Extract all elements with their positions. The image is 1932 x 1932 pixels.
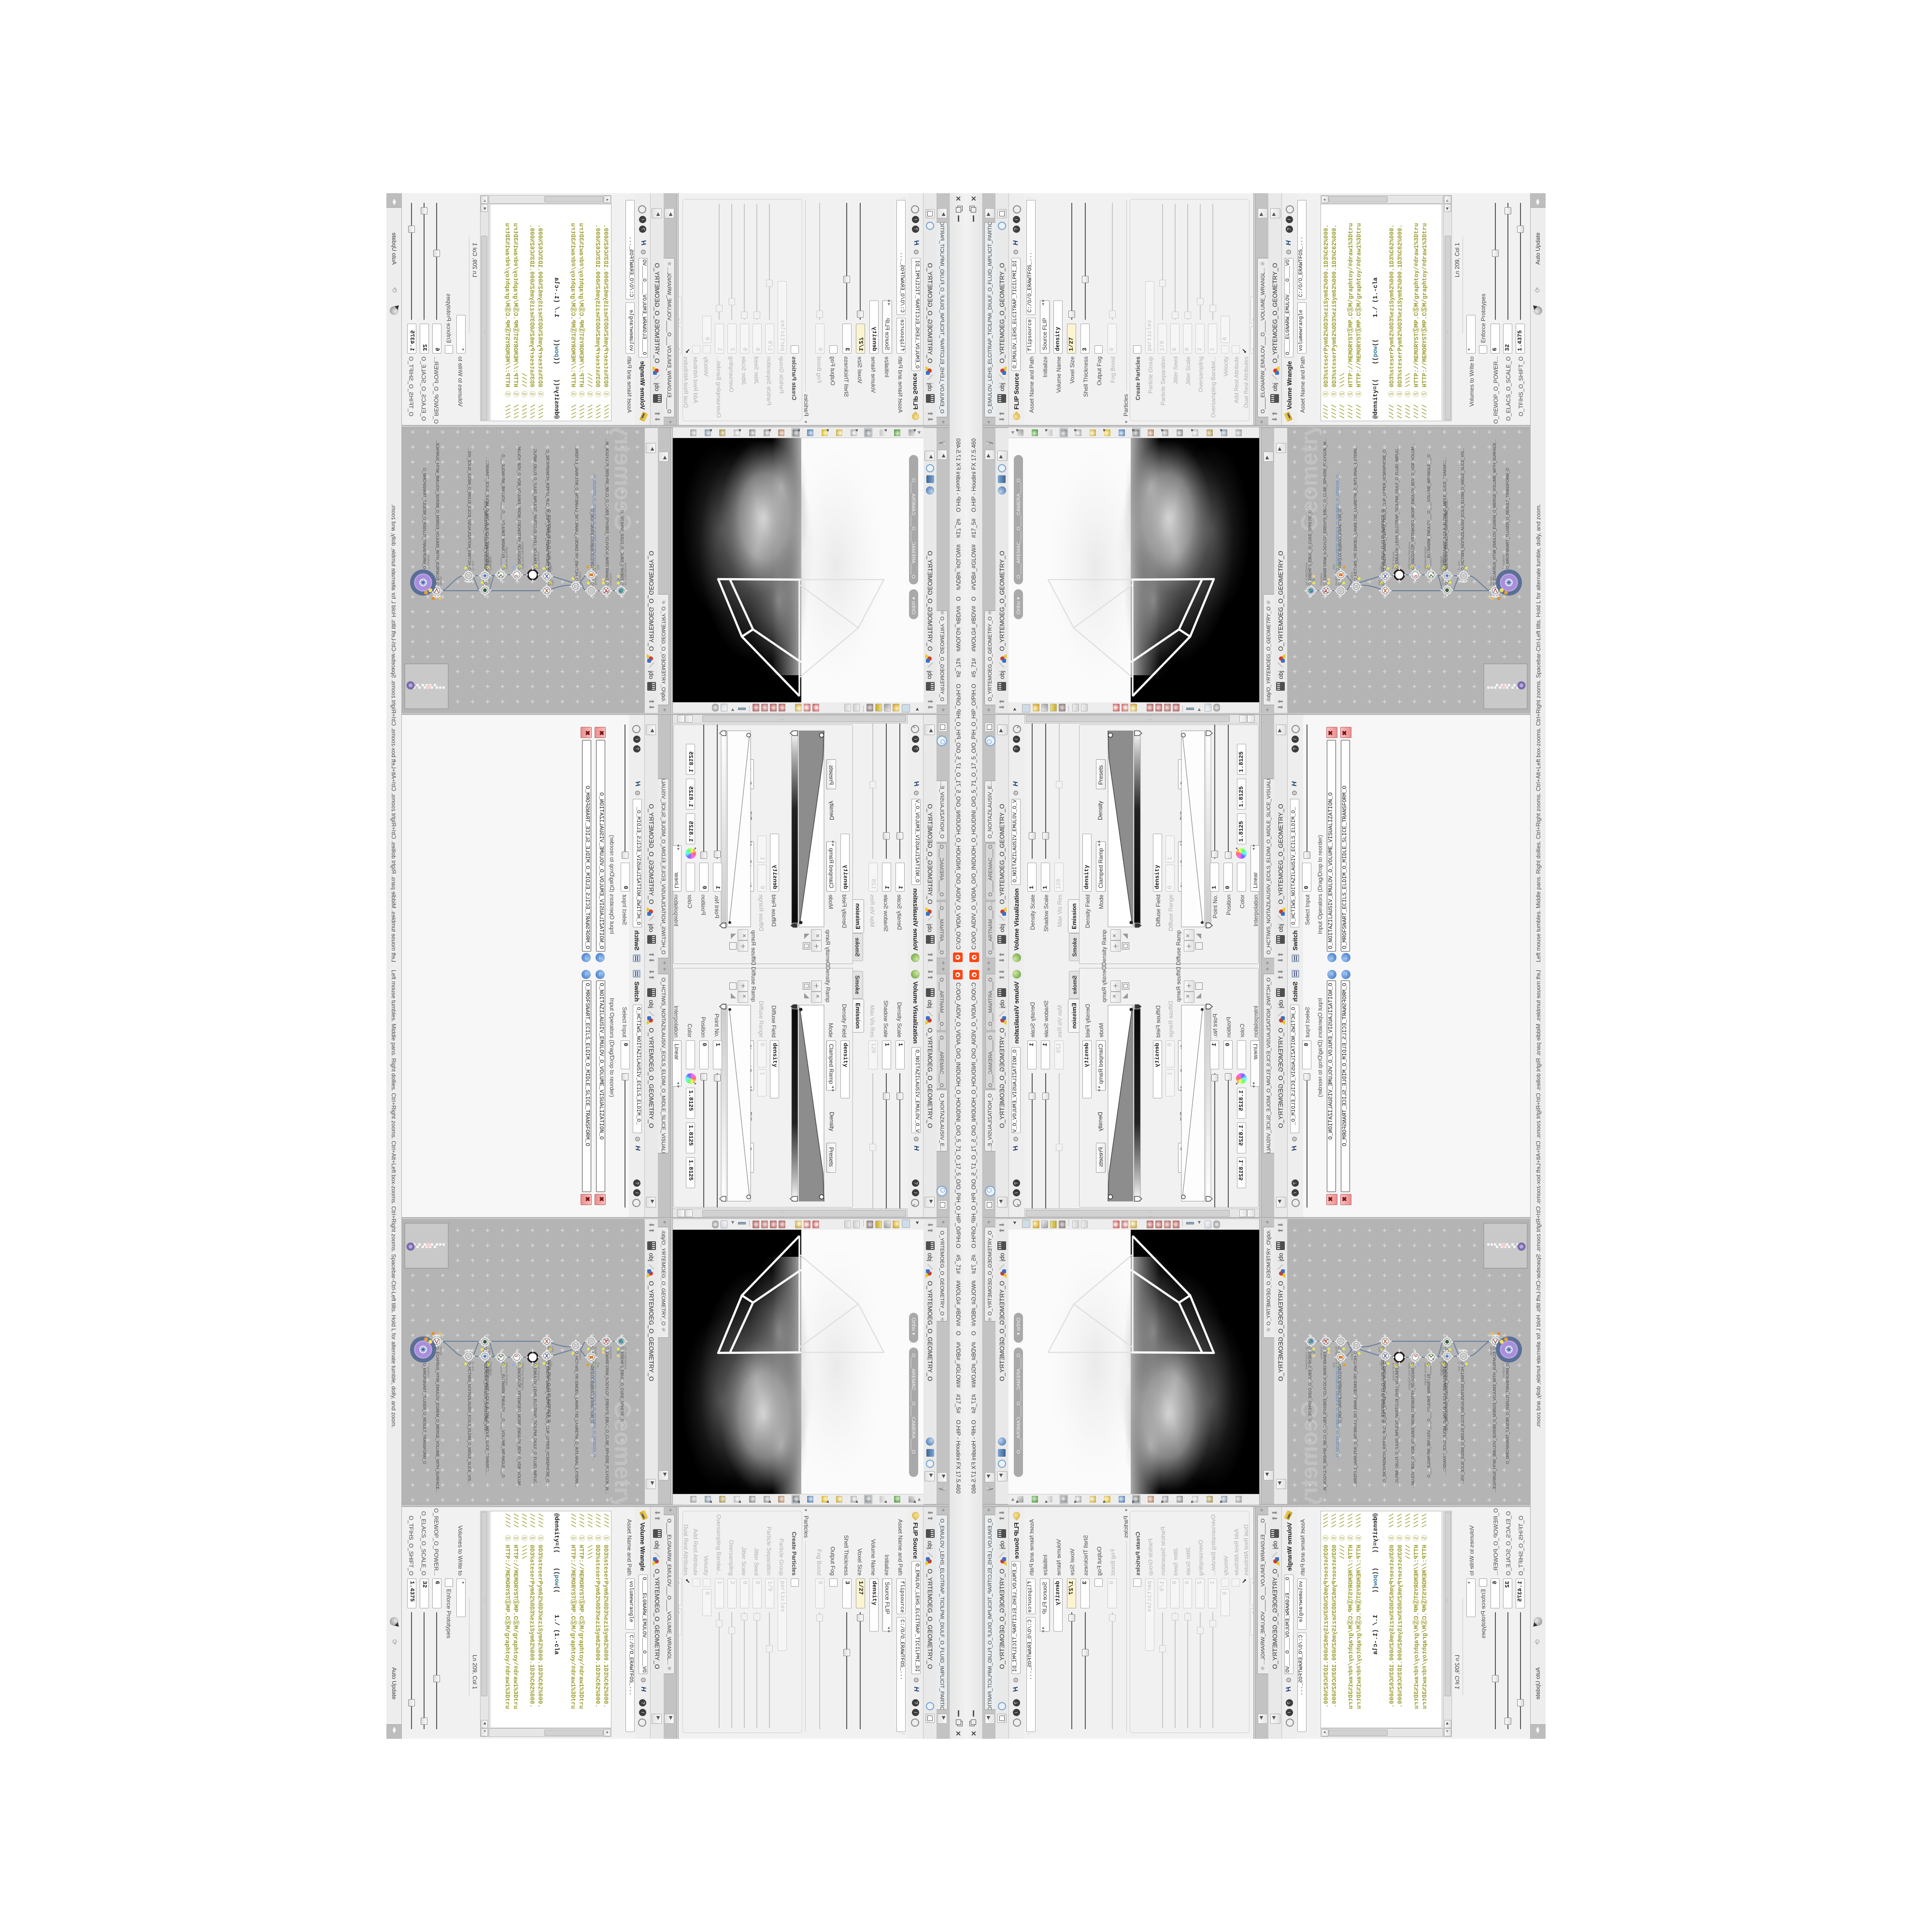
svg-text:Ortho ▾: Ortho ▾: [1016, 1318, 1022, 1335]
svg-text:Clip: Clip: [549, 1361, 553, 1367]
svg-text:Ortho ▾: Ortho ▾: [1016, 597, 1022, 614]
svg-text:O_EMARFERIW_NOGYLOP_EREHPS_EBU: O_EMARFERIW_NOGYLOP_EREHPS_EBUC_O_CUBE_S…: [605, 1347, 609, 1493]
svg-text:Switch: Switch: [471, 1362, 474, 1371]
svg-text:O_ECAFRUS_HTIW_EMULOV_EGREM_O_: O_ECAFRUS_HTIW_EMULOV_EGREM_O_MERGE_VOLU…: [1492, 440, 1497, 585]
svg-text:VDB from Polygons: VDB from Polygons: [521, 542, 524, 569]
svg-text:O____AREMAC____O____CAMERA____: O____AREMAC____O____CAMERA____O: [910, 478, 916, 579]
svg-text:O_EREHPS_EBUC_O_CUBE_SPHERE_O: O_EREHPS_EBUC_O_CUBE_SPHERE_O: [620, 510, 624, 585]
svg-text:O_MROFSNART_ECILS_ELDIM_O_MIDL: O_MROFSNART_ECILS_ELDIM_O_MIDLE_SLICE_TR…: [1443, 1362, 1447, 1475]
svg-text:S: S: [1413, 1355, 1418, 1357]
svg-text:O_MROFSNART_TLUSER_O_RESULT_TR: O_MROFSNART_TLUSER_O_RESULT_TRANSFORM_O: [1506, 1363, 1510, 1464]
svg-text:O_EREHPS_EBUC_O_CUBE_SPHERE_O: O_EREHPS_EBUC_O_CUBE_SPHERE_O: [1308, 1347, 1312, 1422]
svg-text:Switch: Switch: [578, 1351, 582, 1361]
svg-text:Switch: Switch: [578, 571, 582, 581]
svg-text:O_SNOGILOP_YRTEMOEG_MORF_EMULO: O_SNOGILOP_YRTEMOEG_MORF_EMULOV_BDV_O_VD…: [517, 443, 521, 569]
svg-text:O_MROFSNART_TLUSER_O_RESULT_TR: O_MROFSNART_TLUSER_O_RESULT_TRANSFORM_O: [1506, 468, 1510, 569]
svg-text:VDB from Polygons: VDB from Polygons: [521, 1363, 524, 1390]
svg-text:O_EREHPS_EBUC_O_CUBE_SPHERE_O: O_EREHPS_EBUC_O_CUBE_SPHERE_O: [620, 1347, 624, 1422]
svg-text:an_CubeSphere: an_CubeSphere: [624, 562, 627, 585]
svg-text:O_HCTIWS_YRTEMOEG_LANRETXE_LAN: O_HCTIWS_YRTEMOEG_LANRETXE_LANRETNI_O_IN…: [1353, 445, 1358, 581]
svg-text:Clip: Clip: [551, 580, 554, 585]
svg-text:Switch: Switch: [471, 561, 474, 570]
svg-text:Ortho ▾: Ortho ▾: [910, 1318, 916, 1335]
svg-text:FLIP Source: FLIP Source: [537, 1363, 540, 1380]
svg-text:JBO.NO1PETS.TRFOLS_O_5SUNEG_O_: JBO.NO1PETS.TRFOLS_O_5SUNEG_O_GENUS5_O..…: [1335, 472, 1340, 569]
svg-text:Merge: Merge: [439, 1347, 442, 1356]
svg-text:File: File: [596, 564, 599, 569]
svg-text:O____ELGNARW_EMULOV___O____VOL: O____ELGNARW_EMULOV___O____VOLUME_WRANGL…: [501, 455, 505, 569]
svg-text:O____ELGNARW_EMULOV___O____VOL: O____ELGNARW_EMULOV___O____VOLUME_WRANGL…: [1427, 455, 1431, 569]
svg-text:FLIP Source: FLIP Source: [537, 552, 540, 569]
svg-text:Transform: Transform: [426, 1363, 430, 1377]
svg-text:O_EREHPS_EBUC_O_CUBE_SPHERE_O: O_EREHPS_EBUC_O_CUBE_SPHERE_O: [1308, 510, 1312, 585]
svg-text:Merge: Merge: [439, 576, 442, 585]
svg-text:O_SNOGILOP_YRTEMOEG_MORF_EMULO: O_SNOGILOP_YRTEMOEG_MORF_EMULOV_BDV_O_VD…: [1411, 443, 1415, 569]
svg-text:O_ECAFRUS_HTIW_EMULOV_EGREM_O_: O_ECAFRUS_HTIW_EMULOV_EGREM_O_MERGE_VOLU…: [435, 440, 440, 585]
svg-text:File: File: [596, 1363, 599, 1368]
svg-text:O_SNOGILOP_YRTEMOEG_MORF_EMULO: O_SNOGILOP_YRTEMOEG_MORF_EMULOV_BDV_O_VD…: [517, 1363, 521, 1489]
svg-text:O_EREHPSIMEH_REPPU_PILC_O_CLIP: O_EREHPSIMEH_REPPU_PILC_O_CLIP_UPPER_HEM…: [545, 1361, 550, 1482]
svg-text:O_HCTIWS_NOITAZILAUSIV_ECILS_E: O_HCTIWS_NOITAZILAUSIV_ECILS_ELDIM_O_MID…: [467, 1362, 471, 1484]
svg-text:O_EREHPSIMEH_REPPU_PILC_O_CLIP: O_EREHPSIMEH_REPPU_PILC_O_CLIP_UPPER_HEM…: [1382, 1361, 1387, 1482]
svg-text:O_SNOGILOP_YRTEMOEG_MORF_EMULO: O_SNOGILOP_YRTEMOEG_MORF_EMULOV_BDV_O_VD…: [1411, 1363, 1415, 1489]
svg-text:O_EMARFERIW_NOGYLOP_EREHPS_EBU: O_EMARFERIW_NOGYLOP_EREHPS_EBUC_O_CUBE_S…: [1323, 439, 1327, 585]
svg-text:O_HCTIWS_YRTEMOEG_LANRETXE_LAN: O_HCTIWS_YRTEMOEG_LANRETXE_LANRETNI_O_IN…: [574, 1351, 579, 1487]
svg-text:Volume Wrangle: Volume Wrangle: [505, 546, 508, 569]
svg-text:O____ELGNARW_EMULOV___O____VOL: O____ELGNARW_EMULOV___O____VOLUME_WRANGL…: [1427, 1363, 1431, 1477]
svg-text:JBO.NO1PETS.TRFOLS_O_5SUNEG_O_: JBO.NO1PETS.TRFOLS_O_5SUNEG_O_GENUS5_O..…: [592, 1363, 597, 1460]
svg-text:PolyWire: PolyWire: [609, 1347, 612, 1359]
svg-text:O_EREHPSIMEH_REPPU_PILC_O_CLIP: O_EREHPSIMEH_REPPU_PILC_O_CLIP_UPPER_HEM…: [545, 450, 550, 571]
svg-text:O_ECAFRUS_HTIW_EMULOV_EGREM_O_: O_ECAFRUS_HTIW_EMULOV_EGREM_O_MERGE_VOLU…: [435, 1347, 440, 1492]
svg-text:O_HCTIWS_YRTEMOEG_LANRETXE_LAN: O_HCTIWS_YRTEMOEG_LANRETXE_LANRETNI_O_IN…: [1353, 1351, 1358, 1487]
svg-text:O_MROFSNART_ECILS_ELDIM_O_MIDL: O_MROFSNART_ECILS_ELDIM_O_MIDLE_SLICE_TR…: [1443, 457, 1447, 570]
svg-text:Transform: Transform: [489, 556, 492, 570]
svg-text:O_EMARFERIW_NOGYLOP_EREHPS_EBU: O_EMARFERIW_NOGYLOP_EREHPS_EBUC_O_CUBE_S…: [1323, 1347, 1327, 1493]
svg-text:O_EMULOV_LEHS_ELCITRAP_TICILPM: O_EMULOV_LEHS_ELCITRAP_TICILPMI_DIULF_O_…: [1395, 1363, 1399, 1486]
svg-text:an_CubeSphere: an_CubeSphere: [624, 1347, 627, 1370]
svg-text:O_MROFSNART_TLUSER_O_RESULT_TR: O_MROFSNART_TLUSER_O_RESULT_TRANSFORM_O: [422, 468, 426, 569]
svg-text:Volume Wrangle: Volume Wrangle: [505, 1363, 508, 1386]
svg-text:O_MROFSNART_ECILS_ELDIM_O_MIDL: O_MROFSNART_ECILS_ELDIM_O_MIDLE_SLICE_TR…: [485, 1362, 489, 1475]
svg-text:O_HCTIWS_NOITAZILAUSIV_ECILS_E: O_HCTIWS_NOITAZILAUSIV_ECILS_ELDIM_O_MID…: [1461, 1362, 1465, 1484]
svg-text:JBO.NO1PETS.TRFOLS_O_5SUNEG_O_: JBO.NO1PETS.TRFOLS_O_5SUNEG_O_GENUS5_O..…: [1335, 1363, 1340, 1460]
svg-text:Clip: Clip: [549, 565, 553, 571]
svg-text:O_EMULOV_LEHS_ELCITRAP_TICILPM: O_EMULOV_LEHS_ELCITRAP_TICILPMI_DIULF_O_…: [1395, 446, 1399, 569]
svg-text:O____AREMAC____O____CAMERA____: O____AREMAC____O____CAMERA____O: [910, 1353, 916, 1454]
svg-text:O____AREMAC____O____CAMERA____: O____AREMAC____O____CAMERA____O: [1016, 1353, 1022, 1454]
svg-text:O_EREHPSIMEH_REPPU_PILC_O_CLIP: O_EREHPSIMEH_REPPU_PILC_O_CLIP_UPPER_HEM…: [1382, 450, 1387, 571]
svg-text:Transform: Transform: [1502, 1363, 1506, 1377]
svg-text:Transform: Transform: [426, 555, 430, 569]
svg-text:S: S: [514, 575, 519, 577]
svg-text:O_HCTIWS_NOITAZILAUSIV_ECILS_E: O_HCTIWS_NOITAZILAUSIV_ECILS_ELDIM_O_MID…: [1461, 448, 1465, 570]
svg-text:Transform: Transform: [489, 1362, 492, 1376]
svg-text:O_EMULOV_LEHS_ELCITRAP_TICILPM: O_EMULOV_LEHS_ELCITRAP_TICILPMI_DIULF_O_…: [533, 1363, 537, 1486]
svg-text:O____AREMAC____O____CAMERA____: O____AREMAC____O____CAMERA____O: [1016, 478, 1022, 579]
svg-text:Clip: Clip: [551, 1347, 554, 1352]
svg-text:O_HCTIWS_NOITAZILAUSIV_ECILS_E: O_HCTIWS_NOITAZILAUSIV_ECILS_ELDIM_O_MID…: [467, 448, 471, 570]
svg-text:S: S: [514, 1355, 519, 1357]
svg-text:O____ELGNARW_EMULOV___O____VOL: O____ELGNARW_EMULOV___O____VOLUME_WRANGL…: [501, 1363, 505, 1477]
svg-text:O_EMULOV_LEHS_ELCITRAP_TICILPM: O_EMULOV_LEHS_ELCITRAP_TICILPMI_DIULF_O_…: [533, 446, 537, 569]
svg-text:Transform: Transform: [1502, 555, 1506, 569]
svg-text:PolyWire: PolyWire: [609, 573, 612, 585]
svg-text:O_EMARFERIW_NOGYLOP_EREHPS_EBU: O_EMARFERIW_NOGYLOP_EREHPS_EBUC_O_CUBE_S…: [605, 439, 609, 585]
svg-text:S: S: [1413, 575, 1418, 577]
svg-text:O_MROFSNART_ECILS_ELDIM_O_MIDL: O_MROFSNART_ECILS_ELDIM_O_MIDLE_SLICE_TR…: [485, 457, 489, 570]
svg-text:Ortho ▾: Ortho ▾: [910, 597, 916, 614]
svg-text:JBO.NO1PETS.TRFOLS_O_5SUNEG_O_: JBO.NO1PETS.TRFOLS_O_5SUNEG_O_GENUS5_O..…: [592, 472, 597, 569]
svg-text:O_MROFSNART_TLUSER_O_RESULT_TR: O_MROFSNART_TLUSER_O_RESULT_TRANSFORM_O: [422, 1363, 426, 1464]
svg-text:O_ECAFRUS_HTIW_EMULOV_EGREM_O_: O_ECAFRUS_HTIW_EMULOV_EGREM_O_MERGE_VOLU…: [1492, 1347, 1497, 1492]
svg-text:O_HCTIWS_YRTEMOEG_LANRETXE_LAN: O_HCTIWS_YRTEMOEG_LANRETXE_LANRETNI_O_IN…: [574, 445, 579, 581]
